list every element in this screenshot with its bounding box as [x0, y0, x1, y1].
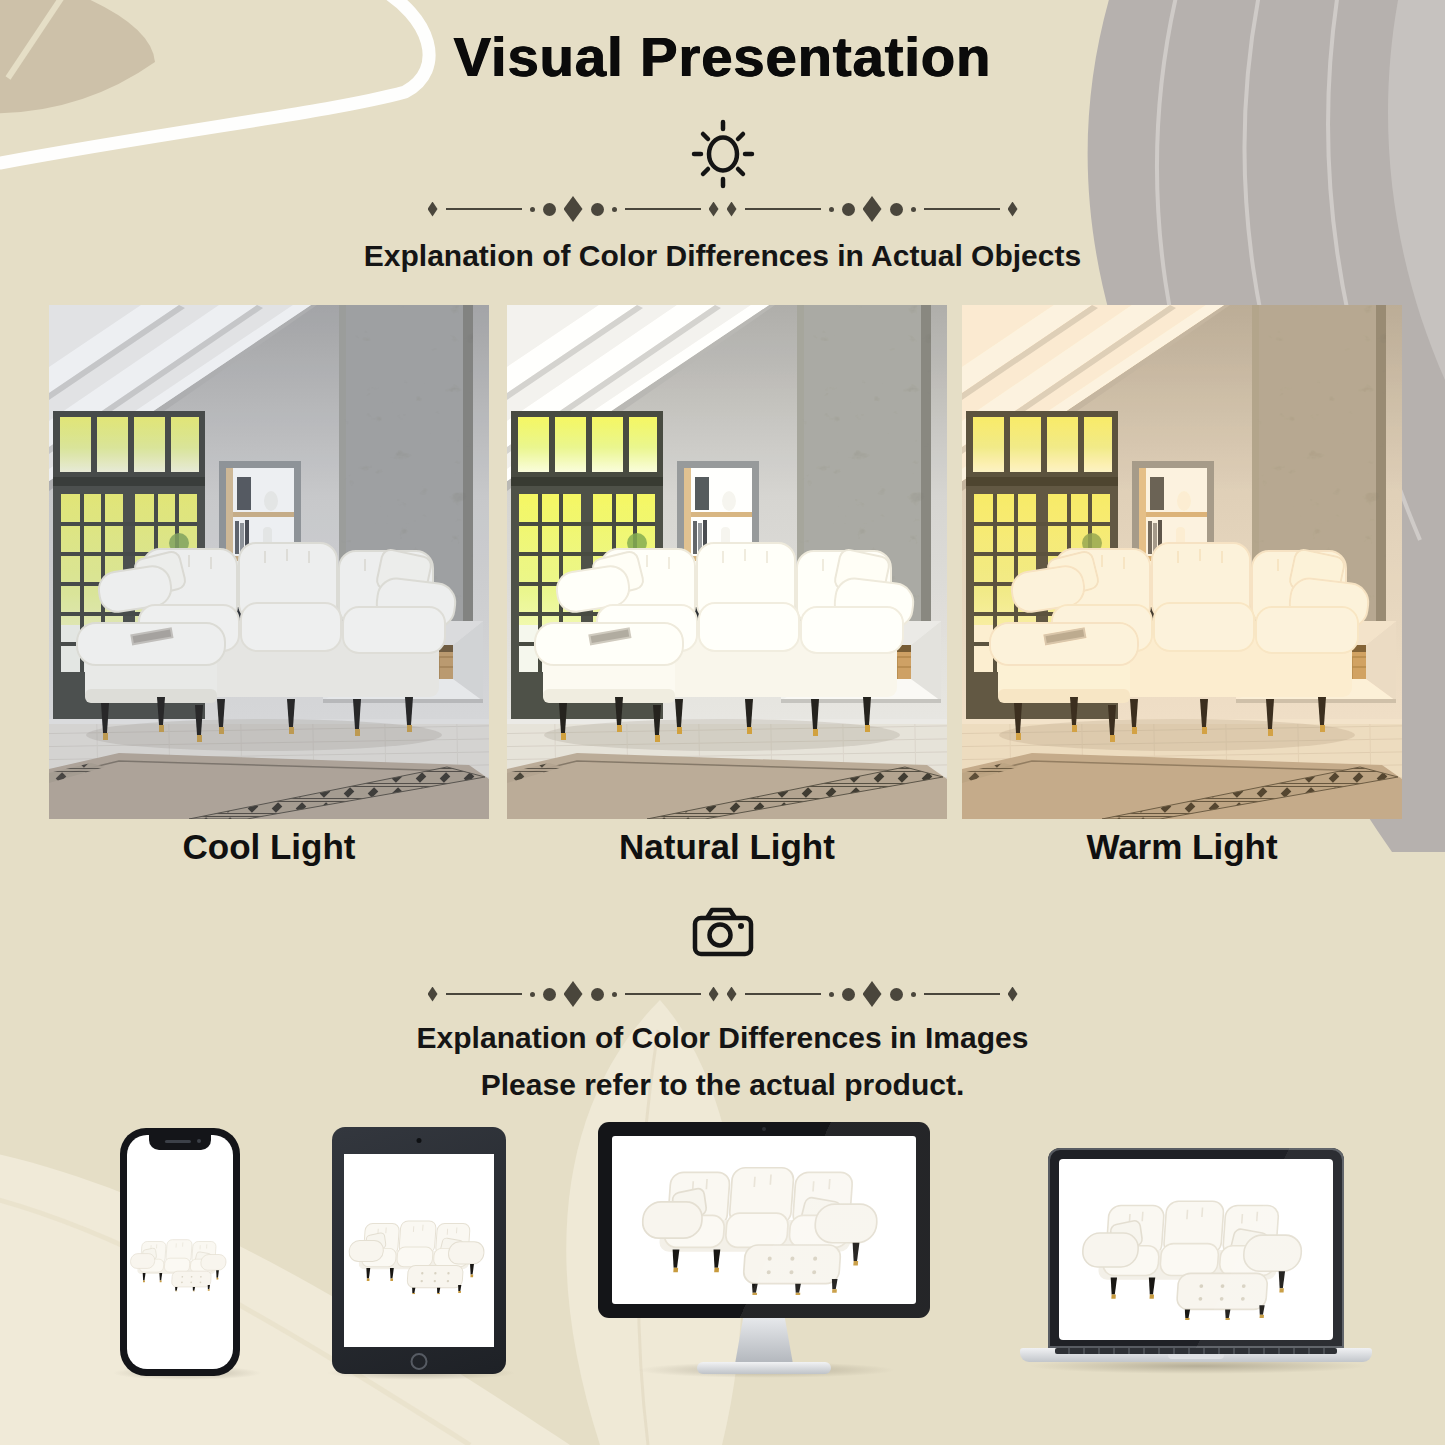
visual-presentation-page: Visual Presentation Explanation of Color… — [0, 0, 1445, 1445]
ornament-divider — [0, 196, 1445, 222]
objects-section-heading: Explanation of Color Differences in Actu… — [0, 239, 1445, 273]
phone-speaker — [165, 1140, 191, 1143]
ornament-divider — [0, 981, 1445, 1007]
warm-light-label: Warm Light — [962, 827, 1402, 867]
images-heading-line1: Explanation of Color Differences in Imag… — [0, 1014, 1445, 1061]
images-heading-line2: Please refer to the actual product. — [0, 1061, 1445, 1108]
natural-light-label: Natural Light — [507, 827, 947, 867]
laptop-mockup — [1020, 1148, 1372, 1362]
page-title: Visual Presentation — [0, 24, 1445, 89]
phone-screen — [127, 1135, 233, 1369]
monitor-stand-base — [697, 1362, 831, 1374]
tablet-home-button — [411, 1353, 428, 1370]
photo-natural-light — [507, 305, 947, 819]
sun-icon — [686, 116, 760, 190]
phone-camera-dot — [197, 1139, 201, 1143]
tablet-mockup — [332, 1127, 506, 1374]
tablet-camera-dot — [417, 1138, 422, 1143]
laptop-keyboard-deck — [1020, 1348, 1372, 1362]
monitor-stand-neck — [735, 1318, 793, 1364]
monitor-camera-dot — [762, 1127, 766, 1131]
tablet-screen — [344, 1154, 494, 1347]
monitor-mockup — [598, 1122, 930, 1372]
sofa-product-image — [129, 1230, 231, 1292]
monitor-bezel — [598, 1122, 930, 1318]
cool-light-label: Cool Light — [49, 827, 489, 867]
sofa-product-image — [347, 1207, 491, 1295]
images-section-heading: Explanation of Color Differences in Imag… — [0, 1014, 1445, 1108]
laptop-trackpad-notch — [1168, 1354, 1224, 1359]
photo-cool-light — [49, 305, 489, 819]
phone-mockup — [120, 1128, 240, 1376]
laptop-lid — [1048, 1148, 1344, 1348]
photo-warm-light — [962, 305, 1402, 819]
phone-notch — [149, 1135, 211, 1150]
camera-icon — [690, 904, 756, 960]
